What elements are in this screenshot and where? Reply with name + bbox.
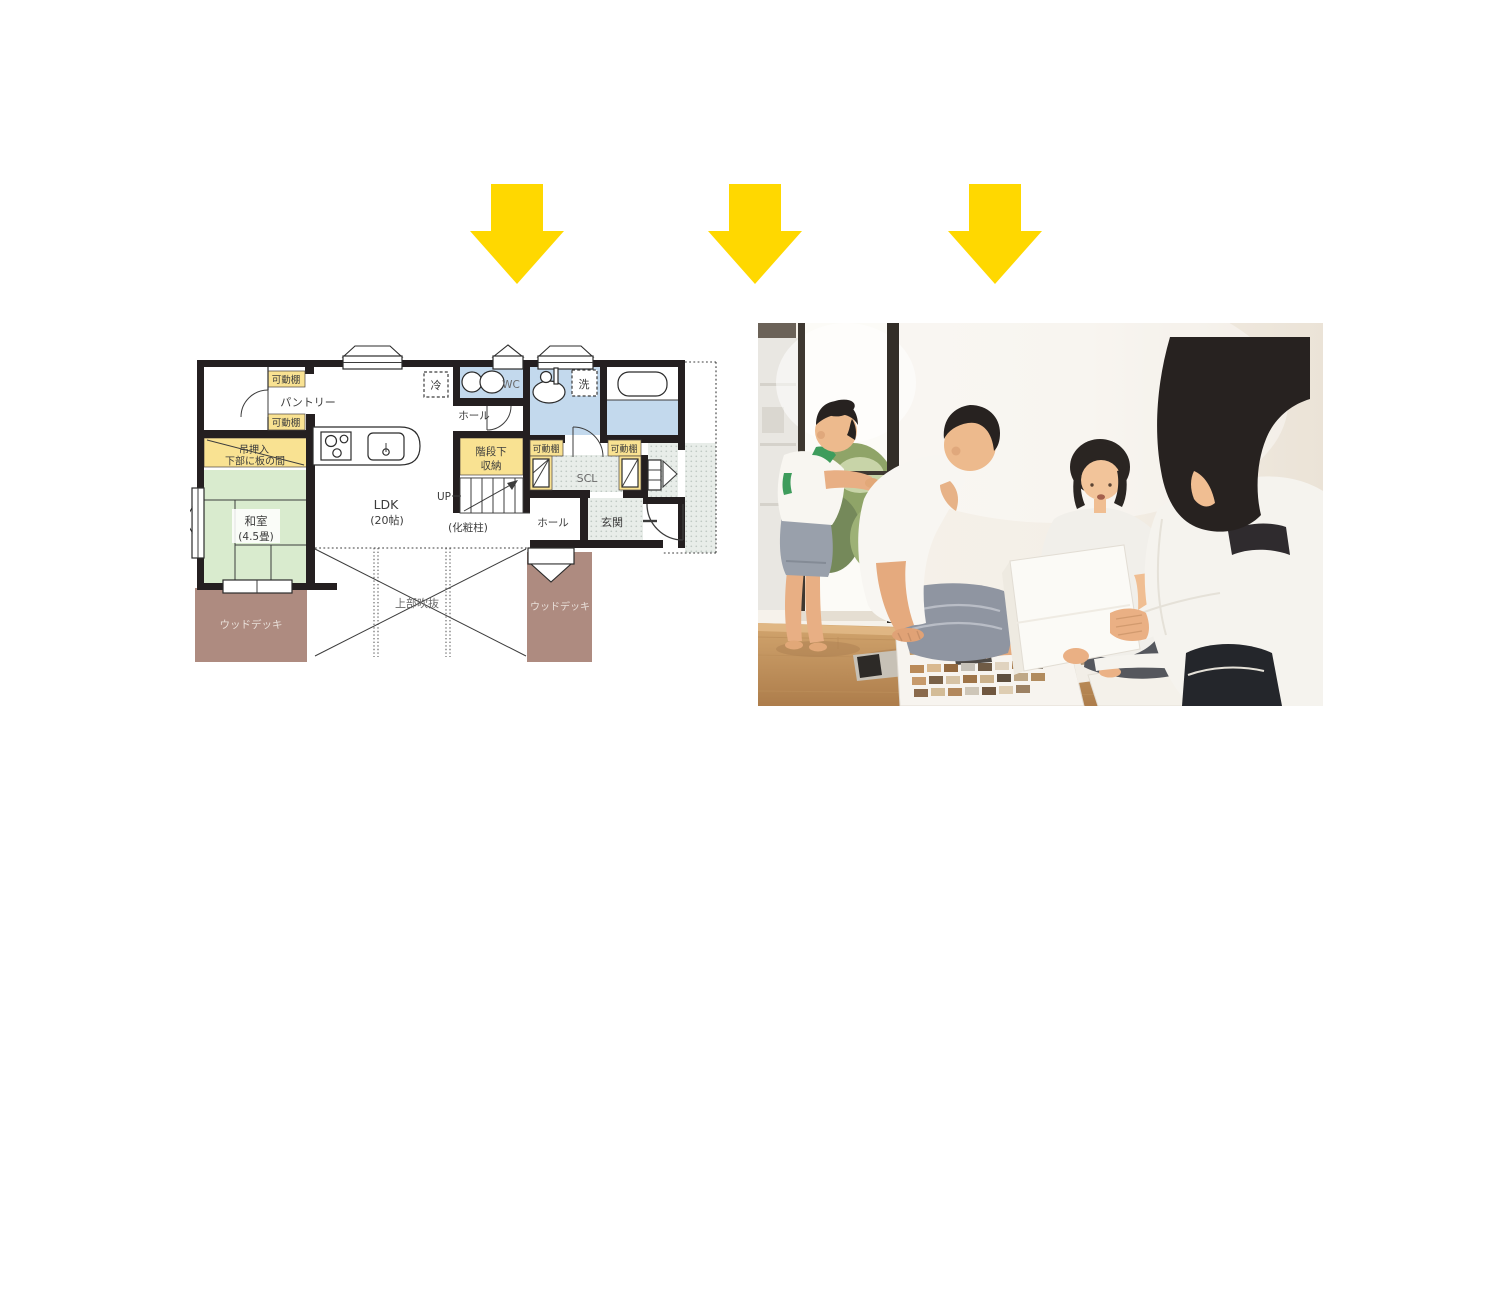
stairs [452, 478, 523, 513]
label-void: 上部吹抜 [395, 596, 439, 610]
label-hanging-closet-1: 吊押入 [239, 443, 269, 456]
label-laundry: 洗 [579, 378, 590, 391]
label-ldk: LDK [374, 497, 400, 512]
down-arrow-2 [708, 184, 802, 284]
label-hanging-closet-2: 下部に板の間 [225, 455, 285, 468]
label-ldk-size: (20帖) [370, 514, 404, 527]
washbasin [533, 381, 565, 403]
label-movable-shelf-1: 可動棚 [272, 374, 301, 386]
label-movable-shelf-3: 可動棚 [532, 443, 559, 455]
window-above-deck [528, 548, 574, 564]
mother-face [1081, 460, 1121, 500]
label-tatami-room: 和室 [245, 514, 268, 528]
down-arrow-icon [470, 184, 564, 284]
entry-door-panel [648, 460, 661, 490]
label-tatami-size: (4.5畳) [238, 531, 273, 543]
label-under-stairs-2: 収納 [481, 459, 502, 472]
staff-pants [1182, 644, 1282, 706]
label-pantry: パントリー [280, 396, 336, 409]
window-roof-1 [343, 346, 402, 357]
door-arc-wc [487, 406, 511, 430]
label-pillar: (化粧柱) [448, 521, 488, 534]
bathtub [618, 372, 667, 396]
floor-plan: 可動棚 可動棚 可動棚 可動棚 パントリー 吊押入 下部に板の間 和室 (4.5… [190, 340, 730, 670]
label-hall-lower: ホール [537, 517, 569, 529]
label-wood-deck-right: ウッドデッキ [530, 600, 590, 613]
label-movable-shelf-4: 可動棚 [610, 443, 637, 455]
door-arc-storage [241, 390, 268, 417]
window-2 [493, 356, 523, 369]
phone [857, 654, 882, 678]
flyer-page: 可動棚 可動棚 可動棚 可動棚 パントリー 吊押入 下部に板の間 和室 (4.5… [0, 0, 1500, 1315]
label-fridge: 冷 [431, 379, 442, 392]
label-under-stairs-1: 階段下 [475, 445, 507, 458]
toilet-tank [462, 372, 482, 392]
label-scl: SCL [577, 472, 599, 485]
window-roof-2 [493, 345, 523, 357]
label-hall-upper: ホール [458, 410, 490, 422]
label-wc: WC [502, 379, 520, 391]
label-movable-shelf-2: 可動棚 [272, 417, 301, 429]
room-bath [607, 400, 678, 435]
family-photo [758, 323, 1323, 706]
label-wood-deck-left: ウッドデッキ [220, 618, 283, 631]
down-arrow-1 [470, 184, 564, 284]
label-entrance: 玄関 [601, 515, 623, 529]
down-arrow-icon [708, 184, 802, 284]
area-porch [685, 443, 716, 553]
window-roof-3 [538, 346, 593, 357]
down-arrow-3 [948, 184, 1042, 284]
down-arrow-icon [948, 184, 1042, 284]
toilet-bowl [480, 371, 504, 393]
window-left-point [190, 508, 192, 532]
label-up: UP [437, 491, 451, 503]
